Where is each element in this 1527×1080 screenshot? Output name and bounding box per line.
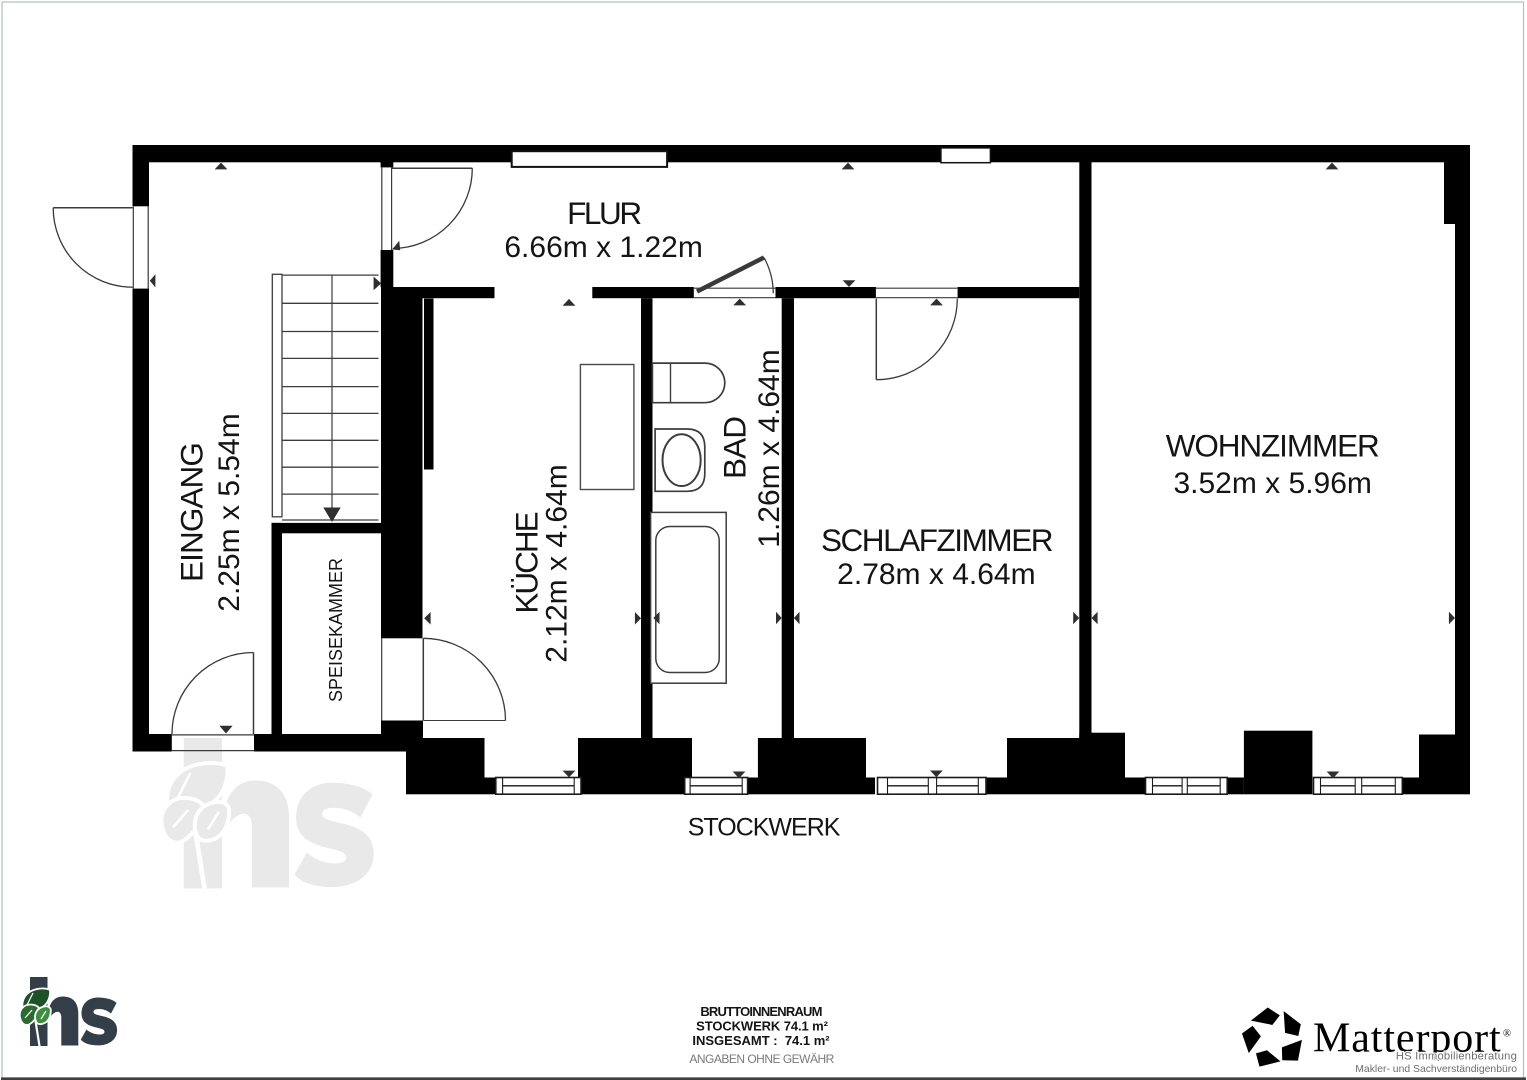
svg-text:WOHNZIMMER: WOHNZIMMER bbox=[1166, 428, 1379, 464]
svg-text:SPEISEKAMMER: SPEISEKAMMER bbox=[326, 558, 346, 702]
svg-text:BAD: BAD bbox=[717, 417, 753, 479]
svg-text:SCHLAFZIMMER: SCHLAFZIMMER bbox=[821, 522, 1053, 558]
svg-text:2.78m x 4.64m: 2.78m x 4.64m bbox=[837, 558, 1035, 591]
svg-text:EINGANG: EINGANG bbox=[174, 443, 210, 582]
svg-text:2.12m x 4.64m: 2.12m x 4.64m bbox=[540, 464, 573, 662]
svg-text:HS Immobilienberatung: HS Immobilienberatung bbox=[1396, 1051, 1517, 1063]
svg-text:®: ® bbox=[1503, 1029, 1511, 1040]
svg-text:STOCKWERK 74.1 m²: STOCKWERK 74.1 m² bbox=[696, 1019, 828, 1034]
svg-text:STOCKWERK: STOCKWERK bbox=[688, 813, 841, 841]
svg-text:KÜCHE: KÜCHE bbox=[509, 512, 545, 613]
svg-text:FLUR: FLUR bbox=[567, 195, 641, 231]
svg-text:Makler- und Sachverständigenbü: Makler- und Sachverständigenbüro bbox=[1355, 1064, 1517, 1075]
svg-text:BRUTTOINNENRAUM: BRUTTOINNENRAUM bbox=[700, 1004, 821, 1019]
svg-text:6.66m x 1.22m: 6.66m x 1.22m bbox=[504, 231, 702, 264]
svg-text:INSGESAMT : 74.1 m²: INSGESAMT : 74.1 m² bbox=[692, 1033, 830, 1048]
svg-text:2.25m x 5.54m: 2.25m x 5.54m bbox=[213, 413, 246, 611]
svg-text:3.52m x 5.96m: 3.52m x 5.96m bbox=[1173, 467, 1371, 500]
svg-text:1.26m x 4.64m: 1.26m x 4.64m bbox=[753, 349, 786, 547]
svg-text:ANGABEN OHNE GEWÄHR: ANGABEN OHNE GEWÄHR bbox=[689, 1052, 834, 1066]
